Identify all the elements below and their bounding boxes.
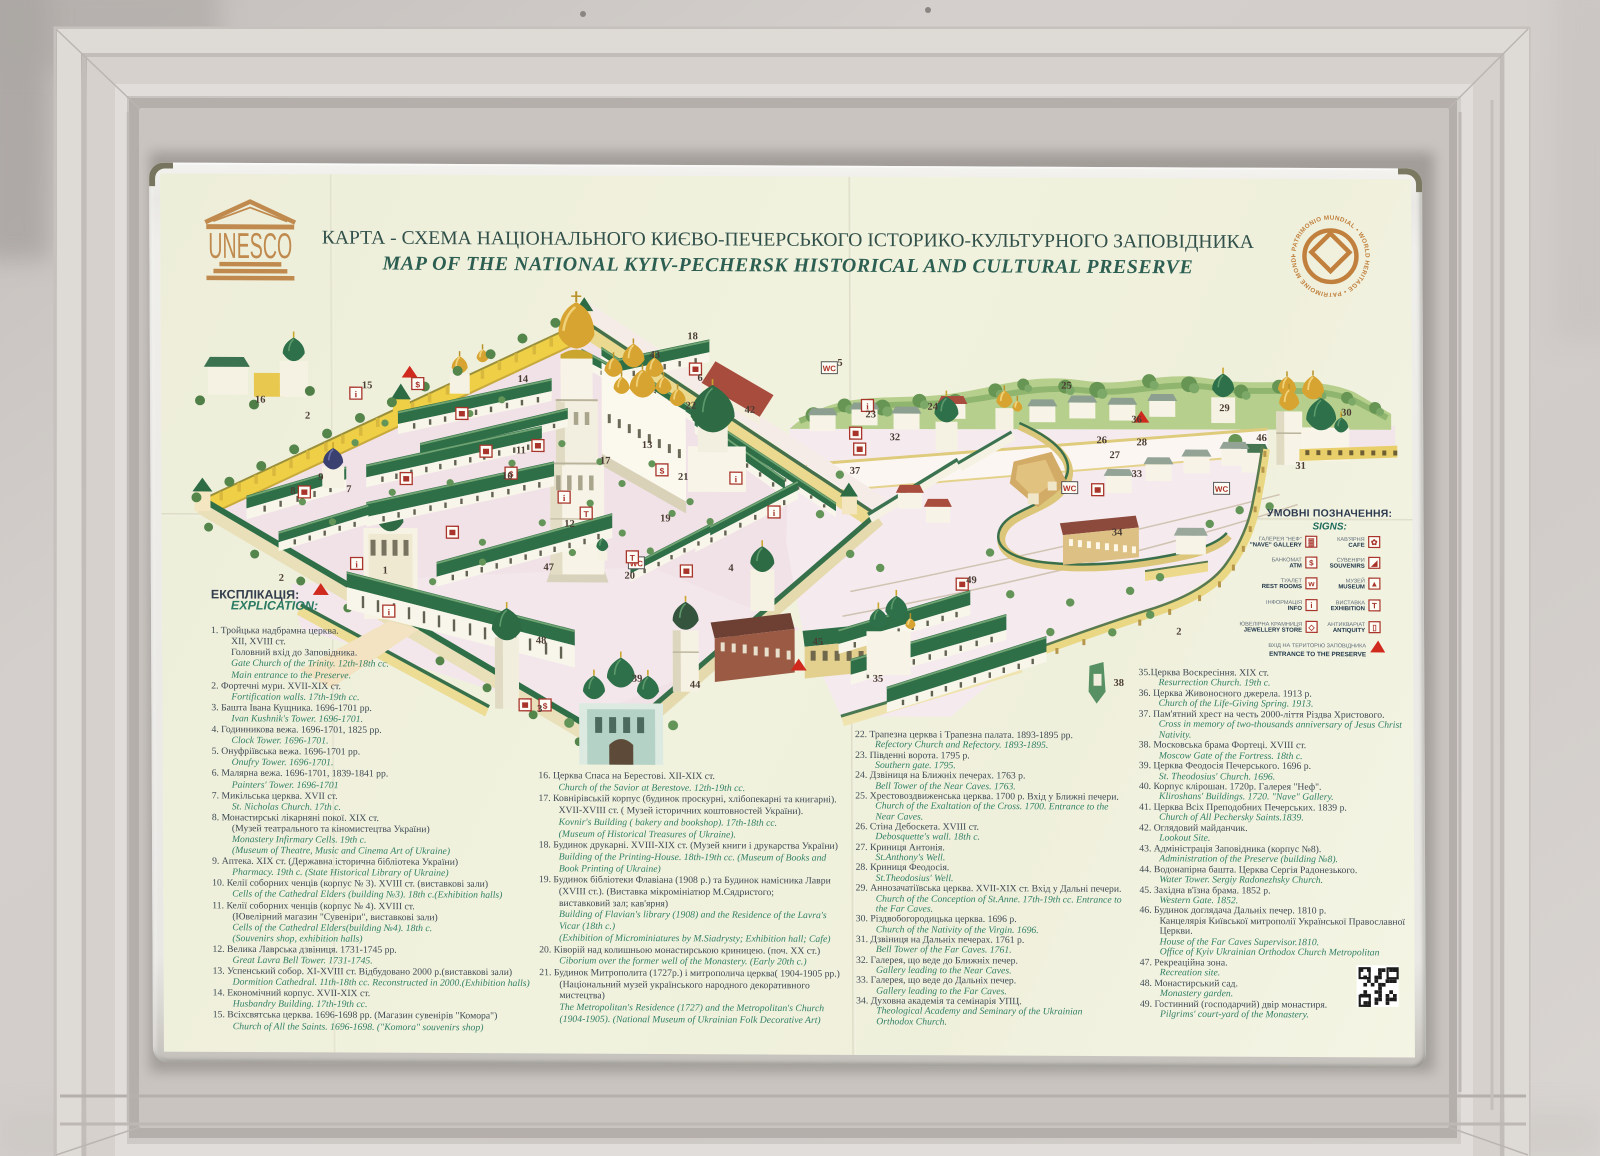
svg-text:10: 10 bbox=[502, 471, 513, 482]
svg-text:35: 35 bbox=[873, 674, 884, 685]
svg-text:"NAVE" GALLERY: "NAVE" GALLERY bbox=[1250, 542, 1302, 548]
svg-text:15: 15 bbox=[362, 380, 373, 391]
svg-text:EXHIBITION: EXHIBITION bbox=[1331, 606, 1365, 612]
svg-text:47: 47 bbox=[543, 562, 554, 573]
svg-text:MUSEUM: MUSEUM bbox=[1338, 584, 1365, 590]
svg-text:4: 4 bbox=[728, 563, 734, 574]
svg-text:14: 14 bbox=[518, 374, 529, 385]
svg-text:19: 19 bbox=[660, 513, 671, 524]
svg-text:45: 45 bbox=[813, 637, 824, 648]
svg-text:43: 43 bbox=[649, 350, 660, 361]
svg-text:w: w bbox=[1307, 579, 1315, 588]
svg-text:46: 46 bbox=[1256, 433, 1267, 444]
svg-text:▯: ▯ bbox=[1372, 623, 1376, 632]
svg-text:WC: WC bbox=[1063, 484, 1077, 493]
svg-text:9: 9 bbox=[318, 472, 323, 483]
svg-text:6: 6 bbox=[697, 373, 702, 384]
svg-text:T: T bbox=[630, 553, 636, 563]
svg-text:МУЗЕЙ: МУЗЕЙ bbox=[1346, 577, 1365, 585]
svg-text:11: 11 bbox=[516, 445, 526, 456]
svg-text:30: 30 bbox=[1341, 408, 1352, 419]
svg-text:8: 8 bbox=[290, 486, 295, 497]
svg-text:T: T bbox=[584, 509, 590, 519]
svg-text:28: 28 bbox=[1136, 437, 1147, 448]
svg-text:i: i bbox=[1310, 601, 1312, 610]
svg-text:ANTIQUITY: ANTIQUITY bbox=[1333, 628, 1365, 634]
svg-text:2: 2 bbox=[305, 411, 310, 422]
svg-text:39: 39 bbox=[632, 674, 643, 685]
svg-text:13: 13 bbox=[642, 440, 653, 451]
svg-text:INFO: INFO bbox=[1288, 606, 1303, 612]
svg-text:7: 7 bbox=[346, 484, 351, 495]
svg-text:22: 22 bbox=[686, 401, 697, 412]
svg-text:УМОВНІ ПОЗНАЧЕННЯ:: УМОВНІ ПОЗНАЧЕННЯ: bbox=[1267, 508, 1392, 520]
svg-text:$: $ bbox=[1309, 559, 1314, 568]
svg-text:REST ROOMS: REST ROOMS bbox=[1262, 584, 1302, 590]
svg-text:SOUVENIRS: SOUVENIRS bbox=[1330, 564, 1365, 570]
svg-text:38: 38 bbox=[1114, 678, 1125, 689]
svg-text:1: 1 bbox=[383, 566, 388, 577]
svg-text:WC: WC bbox=[1215, 485, 1229, 494]
svg-text:32: 32 bbox=[890, 432, 901, 443]
svg-text:27: 27 bbox=[1109, 450, 1120, 461]
svg-text:WC: WC bbox=[823, 364, 837, 373]
svg-text:JEWELLERY STORE: JEWELLERY STORE bbox=[1244, 628, 1302, 634]
svg-text:ATM: ATM bbox=[1289, 563, 1302, 569]
svg-text:12: 12 bbox=[564, 519, 575, 530]
svg-text:2: 2 bbox=[279, 573, 284, 584]
svg-text:$: $ bbox=[415, 380, 420, 390]
svg-text:37: 37 bbox=[850, 466, 861, 477]
svg-text:◇: ◇ bbox=[1308, 623, 1316, 632]
svg-text:34: 34 bbox=[1112, 527, 1123, 538]
svg-text:21: 21 bbox=[678, 472, 689, 483]
svg-text:5: 5 bbox=[837, 358, 842, 369]
svg-text:T: T bbox=[1372, 601, 1377, 610]
svg-text:2: 2 bbox=[1176, 627, 1181, 638]
svg-text:25: 25 bbox=[1061, 381, 1072, 392]
svg-text:26: 26 bbox=[1096, 435, 1107, 446]
svg-text:$: $ bbox=[660, 466, 665, 476]
svg-text:29: 29 bbox=[1219, 403, 1230, 414]
svg-text:49: 49 bbox=[966, 575, 977, 586]
svg-text:36: 36 bbox=[1131, 415, 1142, 426]
svg-text:42: 42 bbox=[745, 405, 756, 416]
svg-text:✿: ✿ bbox=[1371, 538, 1378, 547]
svg-text:◢: ◢ bbox=[1370, 559, 1378, 568]
svg-text:23: 23 bbox=[866, 409, 877, 420]
svg-text:17: 17 bbox=[600, 456, 611, 467]
svg-text:33: 33 bbox=[1132, 469, 1143, 480]
svg-text:24: 24 bbox=[927, 402, 938, 413]
svg-text:18: 18 bbox=[687, 331, 698, 342]
svg-text:16: 16 bbox=[255, 395, 266, 406]
svg-text:SIGNS:: SIGNS: bbox=[1312, 521, 1346, 532]
svg-text:20: 20 bbox=[624, 571, 635, 582]
svg-text:▓: ▓ bbox=[1308, 538, 1314, 548]
svg-text:44: 44 bbox=[690, 680, 701, 691]
svg-text:CAFE: CAFE bbox=[1348, 543, 1364, 549]
svg-text:▲: ▲ bbox=[1370, 580, 1378, 589]
svg-text:ENTRANCE TO THE PRESERVE: ENTRANCE TO THE PRESERVE bbox=[1269, 651, 1366, 658]
svg-text:31: 31 bbox=[1295, 461, 1306, 472]
svg-text:ВХІД НА ТЕРИТОРІЮ ЗАПОВІДНИКА: ВХІД НА ТЕРИТОРІЮ ЗАПОВІДНИКА bbox=[1268, 643, 1366, 649]
